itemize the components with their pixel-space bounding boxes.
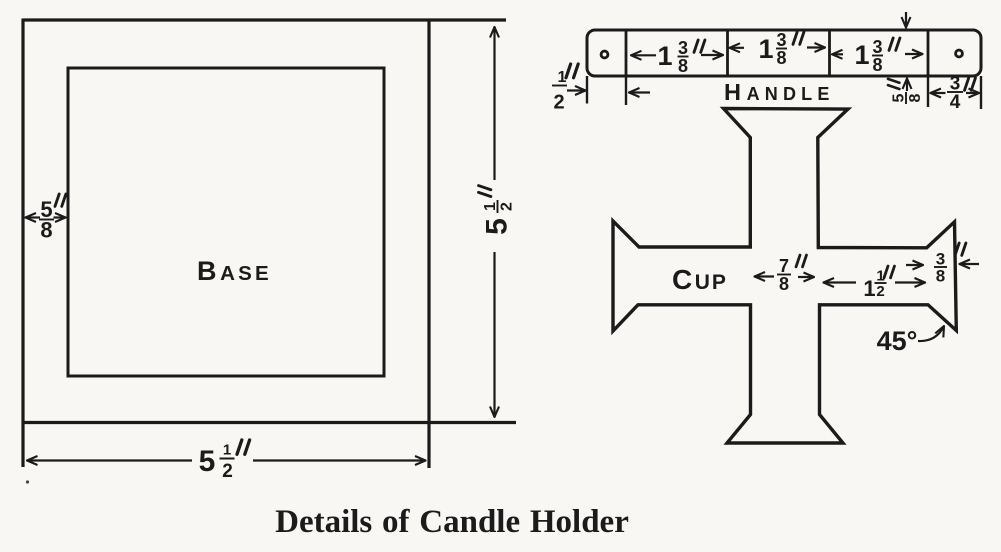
svg-text:C: C: [672, 264, 694, 295]
svg-text:1: 1: [863, 276, 875, 301]
svg-text:1: 1: [657, 41, 672, 71]
svg-text:B: B: [197, 256, 220, 286]
svg-text:2: 2: [222, 461, 233, 482]
svg-text:8: 8: [776, 48, 786, 68]
svg-text:5: 5: [891, 93, 908, 102]
svg-text:1: 1: [758, 34, 773, 64]
svg-text:ANDLE: ANDLE: [747, 84, 835, 104]
svg-text:8: 8: [779, 274, 789, 294]
svg-text:1: 1: [854, 40, 869, 70]
svg-text:8: 8: [907, 93, 924, 102]
svg-text:ASE: ASE: [220, 262, 272, 285]
svg-text:2: 2: [498, 202, 515, 211]
svg-text:8: 8: [678, 56, 688, 76]
svg-text:H: H: [724, 79, 746, 105]
svg-text:5: 5: [481, 218, 514, 235]
svg-text:8: 8: [872, 55, 882, 75]
svg-text:1: 1: [223, 442, 231, 459]
svg-text:45°: 45°: [877, 326, 918, 356]
svg-text:4: 4: [950, 92, 961, 113]
svg-text:UP: UP: [695, 271, 728, 294]
svg-text:2: 2: [876, 283, 884, 300]
svg-text:8: 8: [40, 218, 52, 243]
svg-text:8: 8: [936, 267, 945, 286]
svg-text:2: 2: [553, 92, 564, 114]
svg-text:1: 1: [482, 202, 499, 211]
svg-text:Details of Candle Holder: Details of Candle Holder: [275, 504, 629, 540]
svg-text:5: 5: [199, 445, 216, 478]
